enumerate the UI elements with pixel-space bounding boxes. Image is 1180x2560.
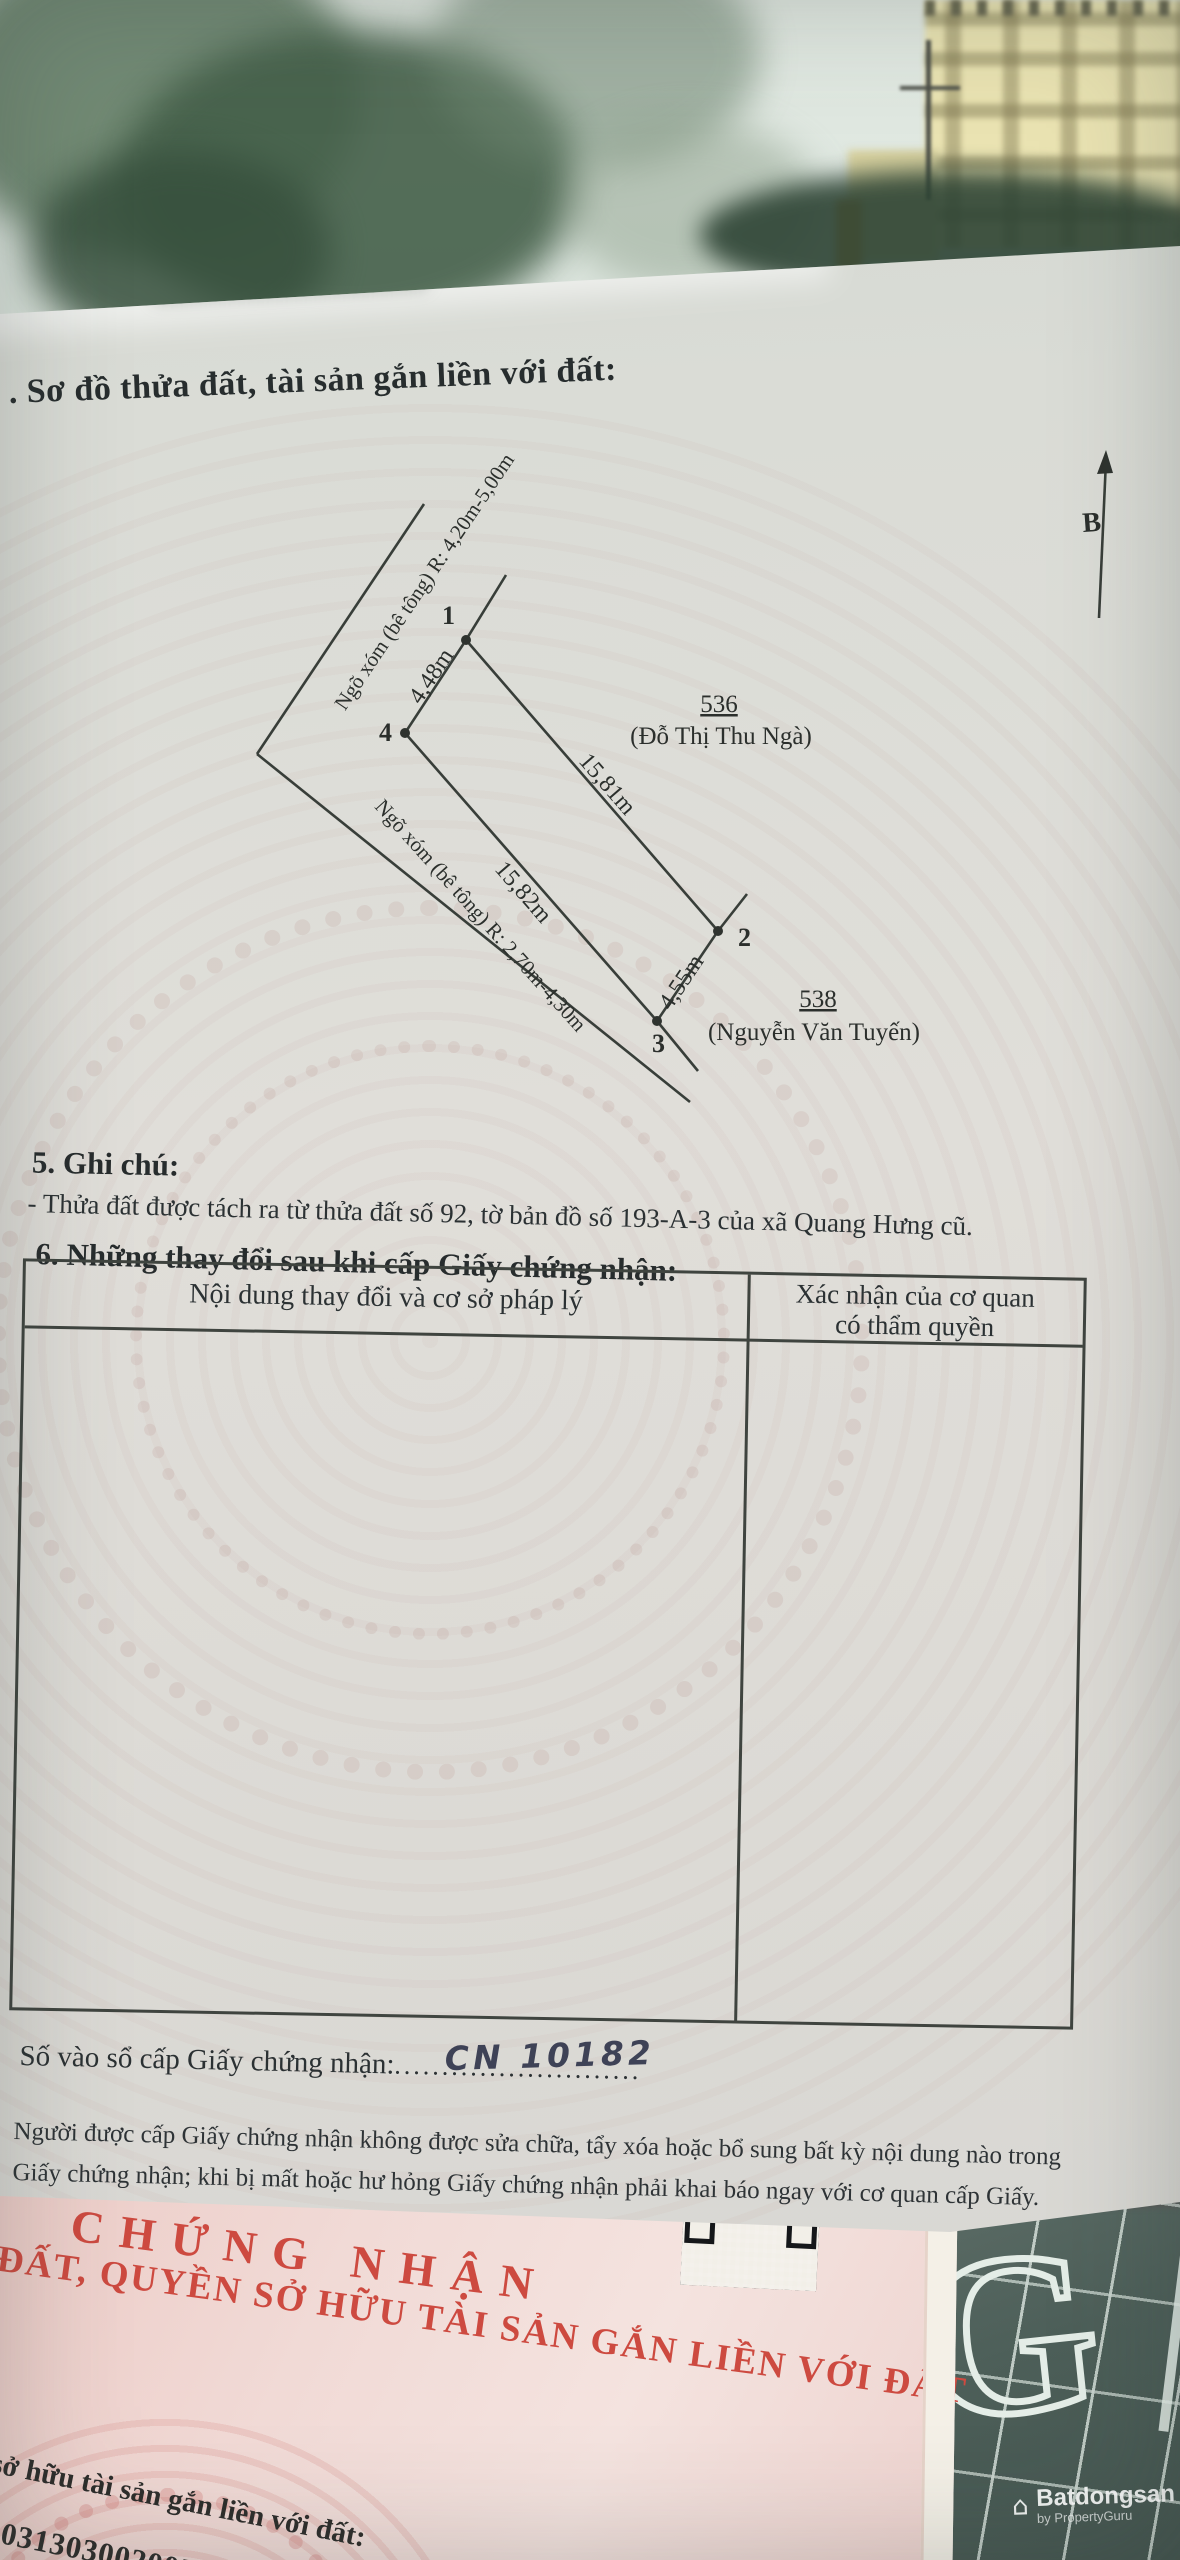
changes-table: Nội dung thay đổi và cơ sở pháp lý Xác n… [9, 1258, 1087, 2029]
section5-heading: 5. Ghi chú: [32, 1144, 180, 1183]
edge-length-4-1: 4,48m [404, 644, 460, 709]
vertex-dot-2 [713, 926, 723, 936]
neighbor-parcel-536: 536 [700, 691, 738, 718]
table-header-authority: Xác nhận của cơ quan có thẩm quyền [746, 1279, 1083, 1345]
parcel-boundary [405, 640, 718, 1021]
neighbor-parcel-538: 538 [799, 986, 837, 1013]
neighbor-owner-538: (Nguyễn Văn Tuyến) [708, 1019, 920, 1046]
north-arrow-head [1097, 450, 1113, 474]
certificate-white-edge [920, 2198, 957, 2560]
vertex-dot-4 [400, 728, 410, 738]
parcel-diagram: 1 2 3 4 Ngõ xóm (bê tông) R: 4,20m-5,00m… [180, 430, 1120, 1120]
lamp-post-arm [900, 86, 960, 90]
table-header-authority-line1: Xác nhận của cơ quan [747, 1279, 1084, 1315]
photo-of-land-certificate: G ⌂ Batdongsan by PropertyGuru CHỨNG NHẬ… [0, 0, 1180, 2560]
vertex-label-4: 4 [379, 718, 392, 747]
batdongsan-logo-icon: ⌂ [1012, 2493, 1029, 2520]
vertex-dot-1 [461, 635, 471, 645]
batdongsan-watermark: ⌂ Batdongsan by PropertyGuru [1011, 2481, 1175, 2527]
table-header-authority-line2: có thẩm quyền [746, 1308, 1083, 1344]
edge-length-3-2: 4,55m [654, 950, 710, 1015]
neighbor-owner-536: (Đỗ Thị Thu Ngà) [630, 723, 812, 750]
certificate-page: . Sơ đồ thửa đất, tài sản gắn liền với đ… [0, 0, 1180, 2560]
edge-length-1-2: 15,81m [573, 748, 641, 820]
table-column-divider [734, 1275, 751, 2021]
vertex-label-3: 3 [652, 1029, 665, 1058]
registry-number-handwritten: CN 10182 [444, 2033, 655, 2078]
pink-certificate-cover: CHỨNG NHẬN ĐẤT, QUYỀN SỞ HỮU TÀI SẢN GẮN… [0, 2185, 958, 2560]
diagram-lines [257, 460, 1106, 1102]
vertex-label-2: 2 [738, 923, 751, 952]
building-roof [925, 0, 1180, 16]
watermark-brand-name: Batdongsan [1036, 2481, 1175, 2511]
road-label-lower: Ngõ xóm (bê tông) R: 2,70m-4,30m [370, 794, 591, 1036]
vertex-dot-3 [652, 1016, 662, 1026]
north-arrow-line [1099, 460, 1106, 618]
north-label: B [1081, 507, 1102, 539]
boundary-extension [466, 575, 506, 640]
vertex-label-1: 1 [442, 601, 455, 630]
table-header-content: Nội dung thay đổi và cơ sở pháp lý [25, 1275, 747, 1320]
